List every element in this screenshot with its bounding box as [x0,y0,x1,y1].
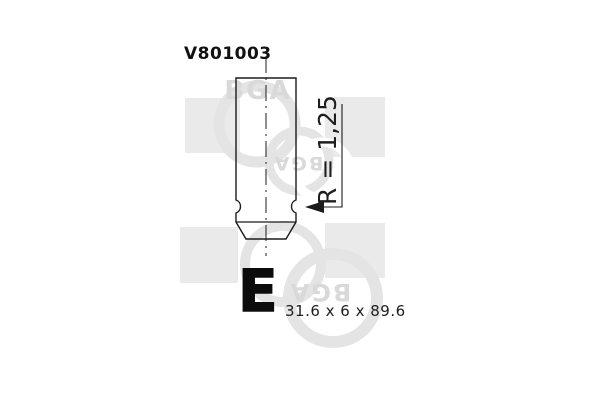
product-drawing-canvas: BGA BGA BGA V801003 R = 1,25 E 31.6 x 6 … [0,0,600,400]
valve-type-code-letter: E [238,262,278,320]
valve-dimensions-label: 31.6 x 6 x 89.6 [285,302,406,320]
valve-outline [236,78,296,239]
radius-annotation-label: R = 1,25 [314,94,342,206]
part-number-label: V801003 [184,44,272,64]
valve-drawing [0,0,600,400]
